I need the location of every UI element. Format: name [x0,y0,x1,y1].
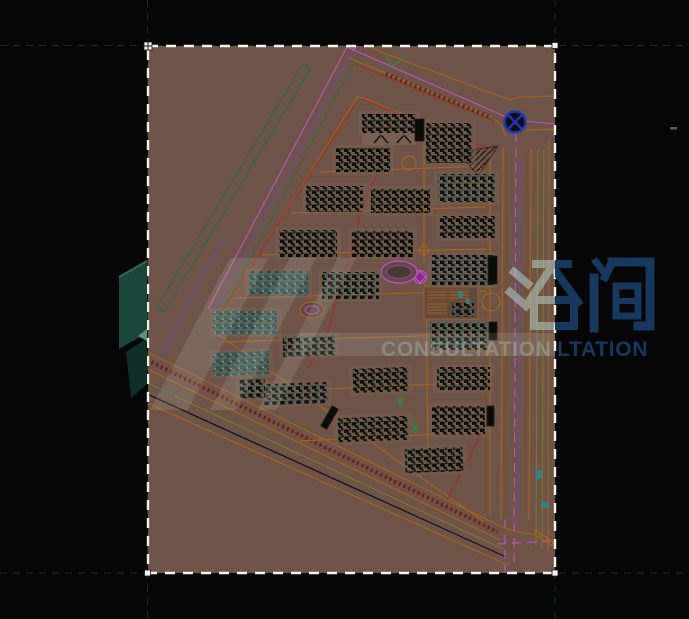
cyan-detail [541,502,549,508]
corner-marker-bottomleft [145,570,151,576]
building-cluster [436,213,499,241]
building-cluster [348,364,412,396]
watermark-en-dark: LTATION [557,338,648,361]
corner-marker-topright [552,43,558,49]
frame-layer [0,0,689,619]
building-cluster [302,183,367,215]
building-cluster [334,413,413,446]
building-cluster [275,227,341,260]
roundabout-symbol [505,112,526,133]
stray-tick [670,127,677,130]
building-cluster [367,186,434,216]
corner-marker-topleft [144,42,152,50]
site-plan-canvas: 咨询 CONSULTATION LTATION [0,0,689,619]
facility-block [424,286,478,319]
building-cluster [358,111,420,136]
building-cluster [433,364,494,393]
building-bar [488,256,497,284]
building-bar [415,119,424,141]
building-cluster [427,252,497,288]
building-cluster [428,403,489,438]
watermark-en-light: CONSULTATION [381,338,552,361]
building-cluster [348,228,417,260]
building-bar [487,406,494,426]
corner-marker-bottomright [552,570,558,576]
building-cluster [332,145,394,175]
building-cluster [434,171,499,205]
cyan-detail [536,470,542,479]
cad-preview-image: 咨询 CONSULTATION LTATION [0,0,689,619]
building-cluster [400,444,467,476]
building-cluster [422,120,476,166]
pond [381,261,417,283]
